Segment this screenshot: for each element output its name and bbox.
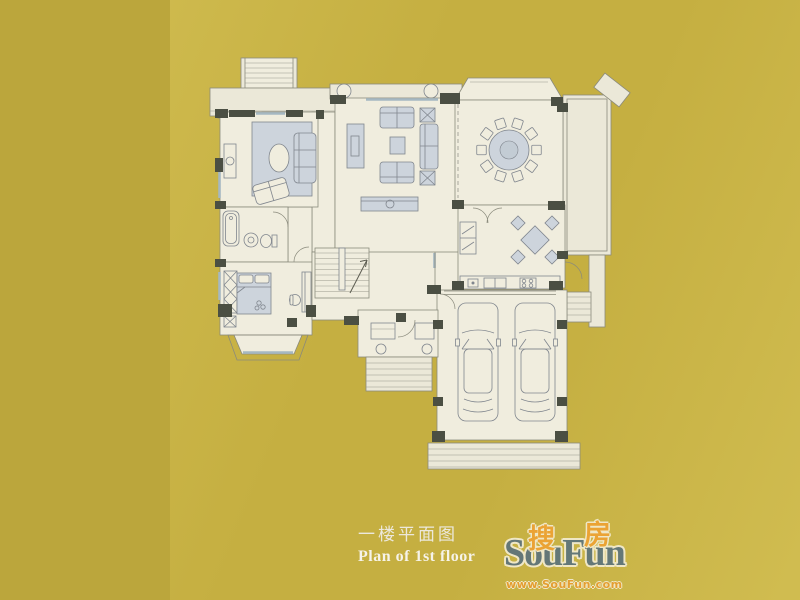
bedroom-bay-window — [228, 335, 308, 360]
floor-plan-drawing — [0, 0, 800, 600]
soufun-watermark: SouFun 搜 房 www.SouFun.com — [504, 514, 664, 596]
top-exterior-stairs — [241, 58, 297, 92]
side-steps — [567, 292, 591, 322]
toilet — [261, 235, 278, 248]
soufun-zh-sou: 搜 — [528, 526, 555, 553]
chaise-sofa — [420, 124, 438, 169]
sofa-three-seat — [294, 133, 316, 183]
car-right — [513, 303, 558, 421]
inner-corridor — [288, 207, 312, 264]
terrace-door-arc — [565, 262, 582, 279]
refrigerator — [460, 222, 476, 254]
caption-english: Plan of 1st floor — [358, 548, 475, 566]
double-bed — [237, 273, 271, 314]
entry-steps — [366, 357, 432, 391]
car-left — [456, 303, 501, 421]
soufun-zh-fang: 房 — [584, 522, 611, 549]
soufun-url-text: www.SouFun.com — [506, 578, 623, 591]
bathtub — [223, 211, 239, 246]
side-table — [224, 144, 236, 178]
caption-chinese: 一楼平面图 — [358, 520, 475, 545]
terrace — [563, 73, 630, 327]
staircase — [315, 248, 369, 298]
sofa-top — [380, 107, 414, 128]
x-side-table-bottom — [420, 171, 435, 185]
pedestal-sink — [244, 233, 258, 247]
plan-caption: 一楼平面图 Plan of 1st floor — [358, 520, 475, 566]
sofa-bottom — [380, 162, 414, 183]
kitchen-counter — [460, 276, 560, 289]
console-table — [361, 197, 418, 211]
nightstand — [224, 316, 236, 327]
x-side-table-top — [420, 108, 435, 122]
oval-coffee-table — [269, 144, 289, 172]
coffee-table — [390, 137, 405, 154]
desk-chair — [290, 295, 301, 306]
garage-apron-steps — [428, 443, 580, 469]
page: 一楼平面图 Plan of 1st floor SouFun 搜 房 www.S… — [0, 0, 800, 600]
tv-cabinet — [347, 124, 364, 168]
